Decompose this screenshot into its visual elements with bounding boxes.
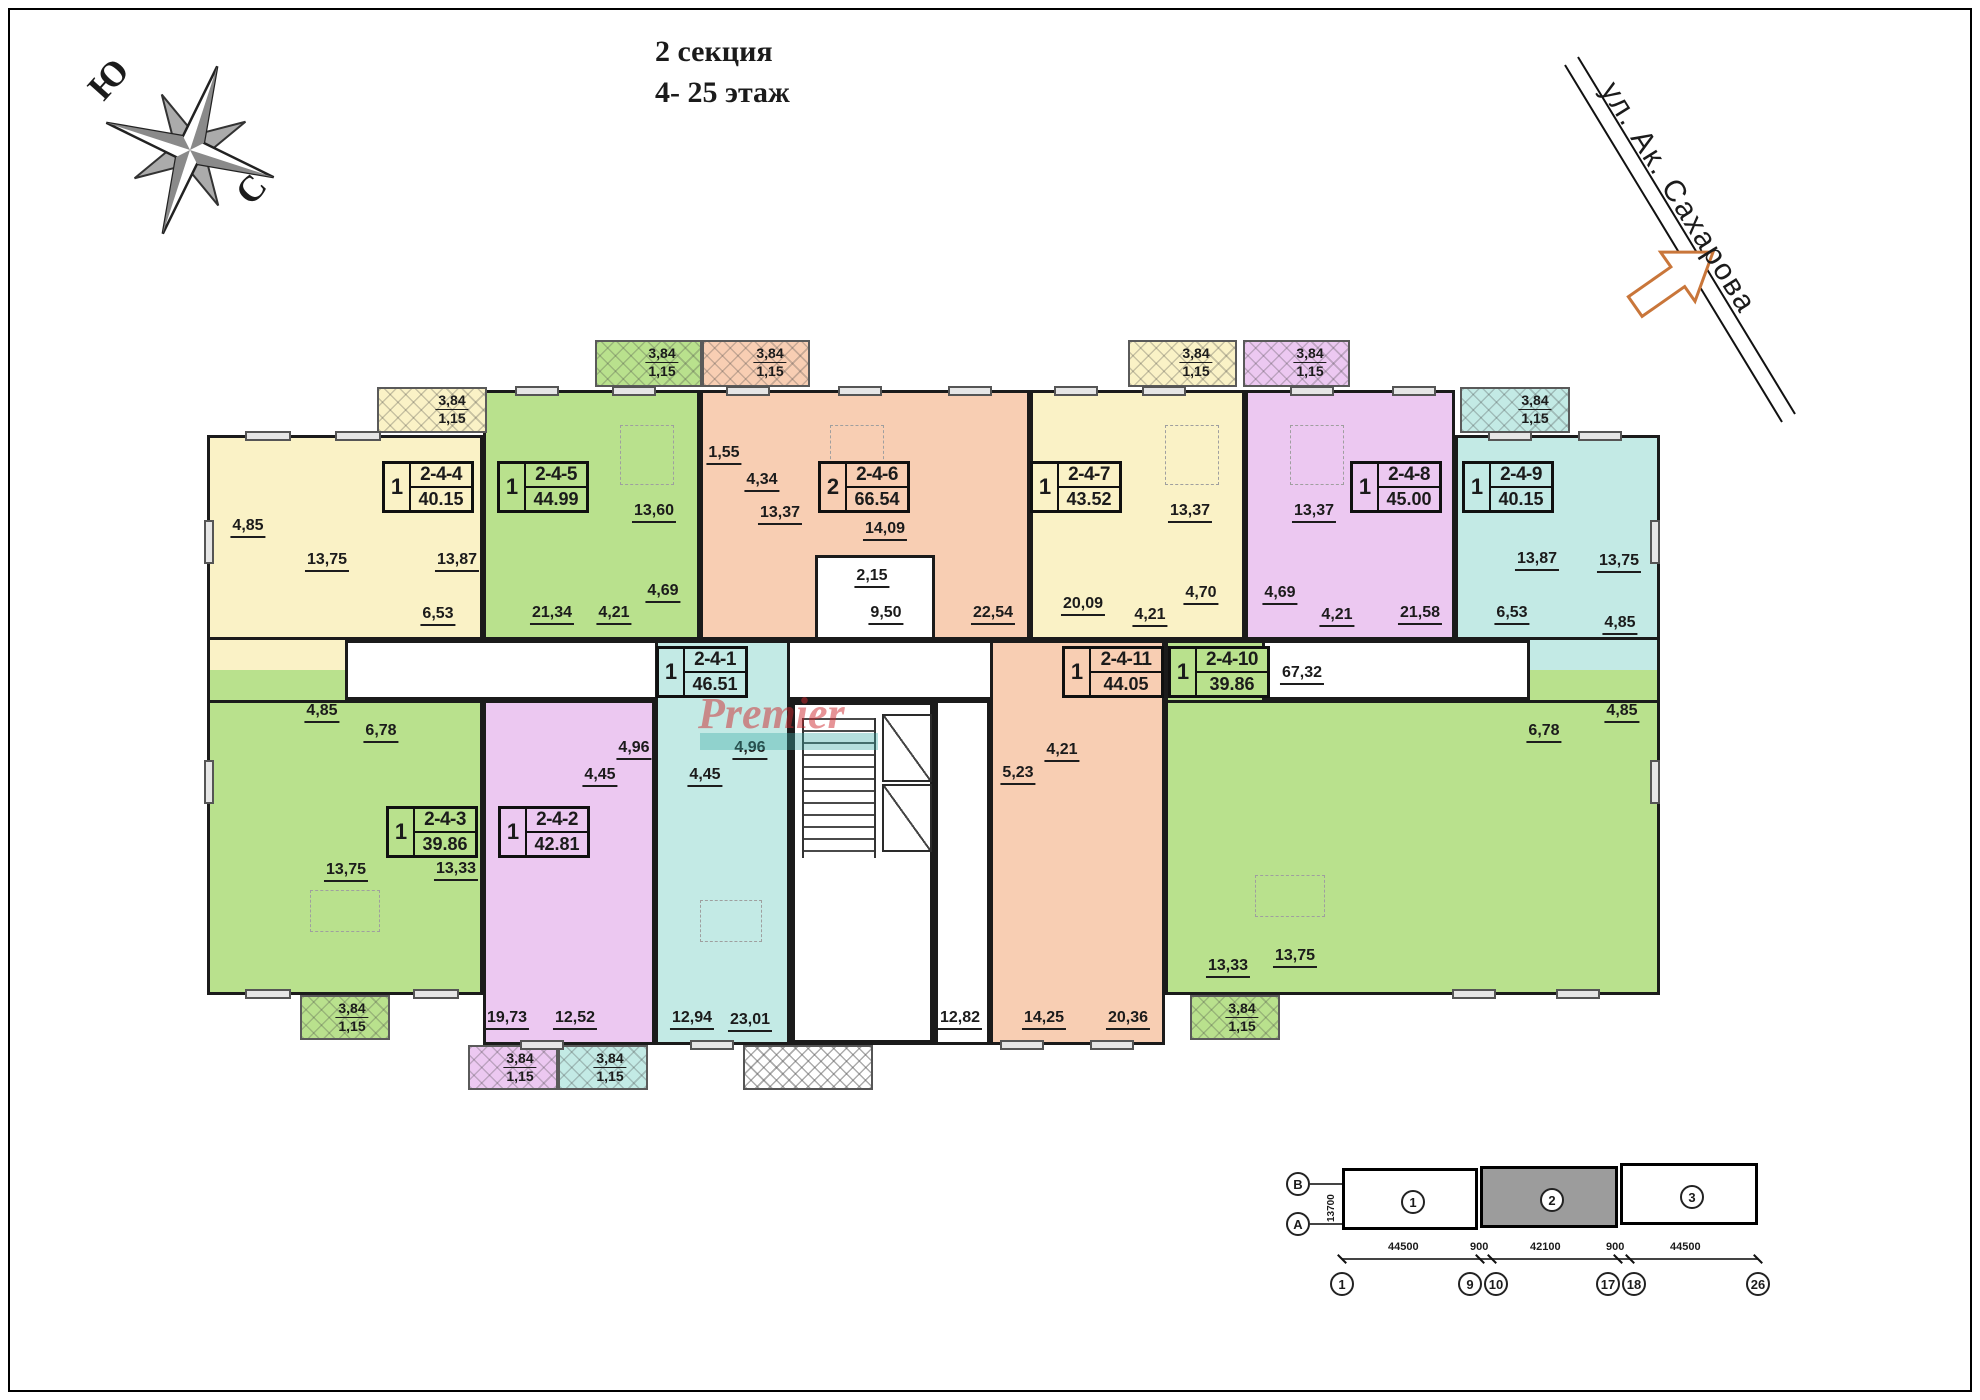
balcony-area: 3,84 [503, 1050, 536, 1068]
keyplan-block-number: 1 [1401, 1190, 1425, 1214]
keyplan-axis-letter: А [1286, 1212, 1310, 1236]
keyplan-axis-number: 18 [1622, 1272, 1646, 1296]
apartment-total-area: 44.99 [526, 488, 586, 510]
room-area-label: 4,21 [1319, 607, 1354, 627]
room-count: 1 [1033, 464, 1059, 510]
section-title: 2 секция [655, 32, 790, 73]
balcony-reduced-area: 1,15 [753, 363, 786, 380]
window-icon [1650, 760, 1660, 804]
apartment-total-area: 39.86 [1197, 673, 1267, 695]
apartment-label-2-4-11: 1 2-4-11 44.05 [1062, 646, 1164, 698]
window-icon [413, 989, 459, 999]
room-count: 1 [1353, 464, 1379, 510]
page-title: 2 секция 4- 25 этаж [655, 32, 790, 113]
keyplan-axis-number: 1 [1330, 1272, 1354, 1296]
room-area-label: 19,73 [485, 1010, 529, 1030]
keyplan-block-2-highlighted: 2 [1480, 1166, 1618, 1228]
room-area-label: 12,52 [553, 1010, 597, 1030]
keyplan-block-number: 3 [1680, 1185, 1704, 1209]
apartment-total-area: 44.05 [1091, 673, 1161, 695]
balcony-areas: 3,841,15 [435, 392, 468, 427]
keyplan-leader-line [1310, 1223, 1344, 1225]
room-count: 1 [385, 464, 411, 510]
balcony-reduced-area: 1,15 [593, 1068, 626, 1085]
window-icon [204, 520, 214, 564]
room-area-label: 22,54 [971, 605, 1015, 625]
room-count: 2 [821, 464, 847, 510]
balcony-areas: 3,841,15 [1293, 345, 1326, 380]
room-area-label: 20,36 [1106, 1010, 1150, 1030]
furniture-icon [1290, 425, 1344, 485]
apartment-total-area: 40.15 [411, 488, 471, 510]
room-area-label: 21,58 [1398, 605, 1442, 625]
window-icon [1488, 431, 1532, 441]
apartment-total-area: 42.81 [527, 833, 587, 855]
apartment-label-2-4-10: 1 2-4-10 39.86 [1168, 646, 1270, 698]
key-plan: В А 13700 1 2 3 44500 900 42100 900 4450… [1280, 1150, 1860, 1350]
room-count: 1 [389, 809, 415, 855]
balcony-reduced-area: 1,15 [335, 1018, 368, 1035]
apartment-number: 2-4-1 [685, 649, 745, 673]
apartment-label-2-4-4: 1 2-4-4 40.15 [382, 461, 474, 513]
room-area-label: 4,69 [1262, 585, 1297, 605]
window-icon [515, 386, 559, 396]
room-area-label: 13,33 [1206, 958, 1250, 978]
window-icon [1090, 1040, 1134, 1050]
keyplan-axis-number: 26 [1746, 1272, 1770, 1296]
window-icon [1290, 386, 1334, 396]
room-area-label: 6,53 [420, 606, 455, 626]
room-area-label: 13,37 [1168, 503, 1212, 523]
room-area-label: 13,75 [1597, 553, 1641, 573]
window-icon [245, 989, 291, 999]
apartment-number: 2-4-9 [1491, 464, 1551, 488]
room-area-label: 4,85 [304, 703, 339, 723]
balcony-areas: 3,841,15 [753, 345, 786, 380]
balcony-area: 3,84 [753, 345, 786, 363]
apartment-number: 2-4-5 [526, 464, 586, 488]
vestibule-area [935, 700, 990, 1045]
balcony-reduced-area: 1,15 [503, 1068, 536, 1085]
balcony-area: 3,84 [1293, 345, 1326, 363]
balcony-area: 3,84 [1225, 1000, 1258, 1018]
apartment-label-2-4-3: 1 2-4-3 39.86 [386, 806, 478, 858]
corridor-area [345, 640, 1530, 700]
room-area-label: 4,85 [1602, 615, 1637, 635]
apartment-label-2-4-7: 1 2-4-7 43.52 [1030, 461, 1122, 513]
room-area-label: 4,45 [687, 767, 722, 787]
room-area-label: 4,85 [230, 518, 265, 538]
room-area-label: 13,60 [632, 503, 676, 523]
window-icon [1142, 386, 1186, 396]
apartment-number: 2-4-2 [527, 809, 587, 833]
lobby-area-label: 2,15 [854, 568, 889, 588]
apartment-area-2-4-11 [990, 640, 1165, 1045]
wing-connector [207, 640, 345, 670]
apartment-label-2-4-8: 1 2-4-8 45.00 [1350, 461, 1442, 513]
room-count: 1 [1065, 649, 1091, 695]
apartment-total-area: 43.52 [1059, 488, 1119, 510]
wing-connector [207, 670, 345, 700]
keyplan-depth-dim: 13700 [1326, 1194, 1337, 1222]
room-area-label: 13,87 [435, 552, 479, 572]
watermark-text: Premier [698, 688, 845, 739]
balcony-areas: 3,841,15 [1225, 1000, 1258, 1035]
room-count: 1 [501, 809, 527, 855]
floors-title: 4- 25 этаж [655, 73, 790, 114]
keyplan-dim: 44500 [1388, 1241, 1419, 1253]
apartment-label-2-4-2: 1 2-4-2 42.81 [498, 806, 590, 858]
balcony-area: 3,84 [335, 1000, 368, 1018]
wing-connector [1530, 670, 1660, 700]
apartment-label-2-4-9: 1 2-4-9 40.15 [1462, 461, 1554, 513]
window-icon [204, 760, 214, 804]
room-count: 1 [1171, 649, 1197, 695]
keyplan-block-number: 2 [1540, 1188, 1564, 1212]
balcony [1460, 387, 1570, 433]
room-area-label: 4,21 [596, 605, 631, 625]
room-area-label: 4,85 [1604, 703, 1639, 723]
room-area-label: 4,70 [1183, 585, 1218, 605]
keyplan-dim: 44500 [1670, 1241, 1701, 1253]
balcony-reduced-area: 1,15 [1518, 410, 1551, 427]
balcony-reduced-area: 1,15 [1293, 363, 1326, 380]
window-icon [1650, 520, 1660, 564]
elevator-shaft-icon [882, 714, 932, 782]
window-icon [1392, 386, 1436, 396]
apartment-number: 2-4-10 [1197, 649, 1267, 673]
balcony-reduced-area: 1,15 [435, 410, 468, 427]
room-area-label: 13,87 [1515, 551, 1559, 571]
floor-plan-sheet: 2 секция 4- 25 этаж Ю С ул. Ак. Сахарова [0, 0, 1980, 1400]
keyplan-dim: 900 [1470, 1241, 1488, 1253]
window-icon [1578, 431, 1622, 441]
keyplan-axis-number: 10 [1484, 1272, 1508, 1296]
balcony-areas: 3,841,15 [645, 345, 678, 380]
room-area-label: 6,78 [1526, 723, 1561, 743]
apartment-number: 2-4-4 [411, 464, 471, 488]
balcony-area: 3,84 [645, 345, 678, 363]
room-area-label: 23,01 [728, 1012, 772, 1032]
keyplan-axis-number: 9 [1458, 1272, 1482, 1296]
balcony-area: 3,84 [593, 1050, 626, 1068]
room-count: 1 [500, 464, 526, 510]
room-area-label: 9,50 [868, 605, 903, 625]
apartment-label-2-4-5: 1 2-4-5 44.99 [497, 461, 589, 513]
room-area-label: 5,23 [1000, 765, 1035, 785]
furniture-icon [1165, 425, 1219, 485]
balcony-areas: 3,841,15 [335, 1000, 368, 1035]
window-icon [690, 1040, 734, 1050]
window-icon [1000, 1040, 1044, 1050]
entrance-porch [743, 1045, 873, 1090]
room-area-label: 13,75 [1273, 948, 1317, 968]
window-icon [1556, 989, 1600, 999]
balcony-reduced-area: 1,15 [1179, 363, 1212, 380]
balcony-area: 3,84 [1518, 392, 1551, 410]
apartment-total-area: 66.54 [847, 488, 907, 510]
balcony-areas: 3,841,15 [1179, 345, 1212, 380]
room-area-label: 13,75 [305, 552, 349, 572]
balcony-areas: 3,841,15 [593, 1050, 626, 1085]
furniture-icon [310, 890, 380, 932]
window-icon [612, 386, 656, 396]
window-icon [1452, 989, 1496, 999]
apartment-total-area: 40.15 [1491, 488, 1551, 510]
window-icon [838, 386, 882, 396]
balcony-reduced-area: 1,15 [645, 363, 678, 380]
room-area-label: 4,34 [744, 472, 779, 492]
room-area-label: 1,55 [706, 445, 741, 465]
furniture-icon [620, 425, 674, 485]
room-area-label: 20,09 [1061, 596, 1105, 616]
balcony-reduced-area: 1,15 [1225, 1018, 1258, 1035]
apartment-label-2-4-6: 2 2-4-6 66.54 [818, 461, 910, 513]
furniture-icon [700, 900, 762, 942]
balcony [377, 387, 487, 433]
keyplan-dim-line [1342, 1258, 1758, 1260]
room-area-label: 13,33 [434, 861, 478, 881]
room-area-label: 12,94 [670, 1010, 714, 1030]
window-icon [245, 431, 291, 441]
room-area-label: 4,45 [582, 767, 617, 787]
keyplan-leader-line [1310, 1183, 1344, 1185]
apartment-number: 2-4-8 [1379, 464, 1439, 488]
room-area-label: 14,25 [1022, 1010, 1066, 1030]
apartment-number: 2-4-6 [847, 464, 907, 488]
room-area-label: 4,21 [1132, 607, 1167, 627]
keyplan-dim: 42100 [1530, 1241, 1561, 1253]
apartment-total-area: 45.00 [1379, 488, 1439, 510]
apartment-number: 2-4-3 [415, 809, 475, 833]
room-area-label: 6,53 [1494, 605, 1529, 625]
room-area-label: 4,69 [645, 583, 680, 603]
room-area-label: 14,09 [863, 521, 907, 541]
room-area-label: 4,96 [616, 740, 651, 760]
elevator-shaft-icon [882, 784, 932, 852]
window-icon [520, 1040, 564, 1050]
balcony-area: 3,84 [1179, 345, 1212, 363]
corridor-area-label: 67,32 [1280, 665, 1324, 685]
apartment-number: 2-4-7 [1059, 464, 1119, 488]
keyplan-block-1: 1 [1342, 1168, 1478, 1230]
window-icon [948, 386, 992, 396]
room-area-label: 13,37 [1292, 503, 1336, 523]
wing-connector [1530, 640, 1660, 670]
apartment-area-2-4-10 [1165, 700, 1660, 995]
room-area-label: 4,21 [1044, 742, 1079, 762]
room-count: 1 [659, 649, 685, 695]
keyplan-axis-number: 17 [1596, 1272, 1620, 1296]
vestibule-area-label: 12,82 [938, 1010, 982, 1030]
window-icon [335, 431, 381, 441]
room-count: 1 [1465, 464, 1491, 510]
apartment-number: 2-4-11 [1091, 649, 1161, 673]
furniture-icon [1255, 875, 1325, 917]
balcony-areas: 3,841,15 [503, 1050, 536, 1085]
apartment-total-area: 39.86 [415, 833, 475, 855]
window-icon [726, 386, 770, 396]
keyplan-dim: 900 [1606, 1241, 1624, 1253]
keyplan-axis-letter: В [1286, 1172, 1310, 1196]
room-area-label: 21,34 [530, 605, 574, 625]
balcony-area: 3,84 [435, 392, 468, 410]
balcony-areas: 3,841,15 [1518, 392, 1551, 427]
room-area-label: 13,75 [324, 862, 368, 882]
room-area-label: 13,37 [758, 505, 802, 525]
window-icon [1054, 386, 1098, 396]
room-area-label: 6,78 [363, 723, 398, 743]
keyplan-block-3: 3 [1620, 1163, 1758, 1225]
